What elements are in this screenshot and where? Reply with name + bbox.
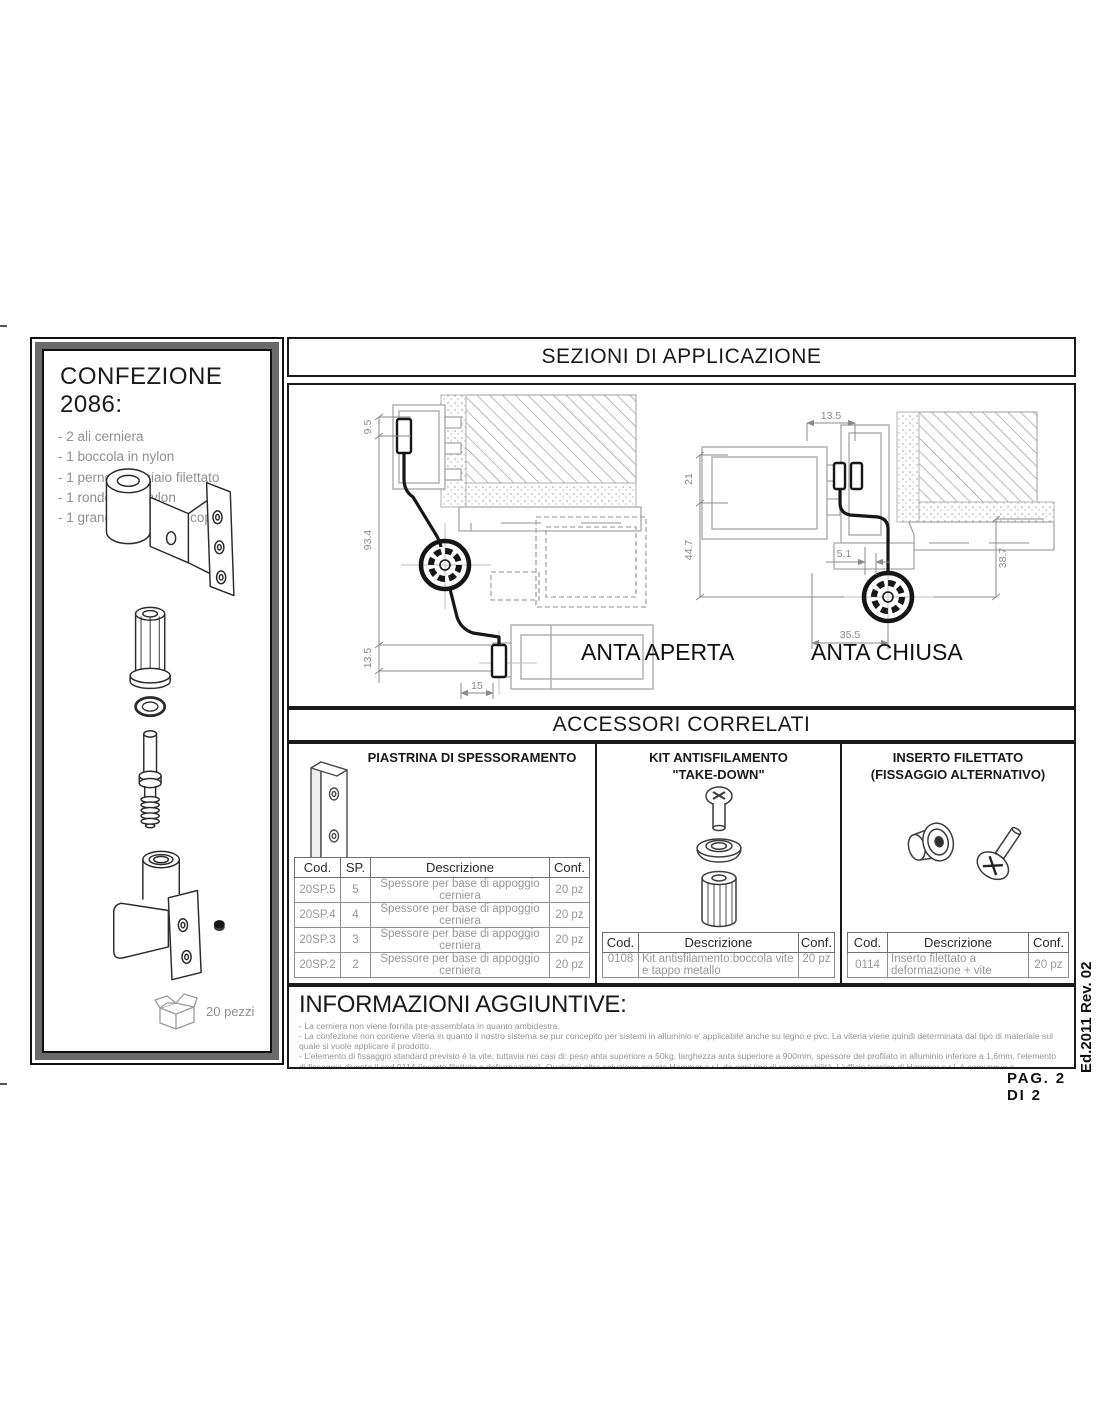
cell-cod: 20SP.4 xyxy=(295,903,341,928)
sezioni-title: SEZIONI DI APPLICAZIONE xyxy=(542,345,822,369)
package-quantity: 20 pezzi xyxy=(154,991,254,1031)
dim-label: 44.7 xyxy=(684,540,695,561)
accessori-header: ACCESSORI CORRELATI xyxy=(287,708,1076,742)
crop-mark xyxy=(0,1083,7,1085)
accessori-body: PIASTRINA DI SPESSORAMENTO Cod. xyxy=(287,742,1076,985)
cell-conf: 20 pz xyxy=(550,903,590,928)
exploded-hinge-drawing xyxy=(72,459,272,987)
accessori-title: ACCESSORI CORRELATI xyxy=(553,713,811,737)
confezione-panel: CONFEZIONE 2086: - 2 ali cerniera - 1 bo… xyxy=(30,337,284,1065)
dim-label: 13.5 xyxy=(362,648,374,669)
cell-conf: 20 pz xyxy=(550,953,590,978)
table-row: 20SP.3 3 Spessore per base di appoggio c… xyxy=(295,928,590,953)
cell-cod: 0114 xyxy=(848,953,888,978)
quantity-label: 20 pezzi xyxy=(206,1004,254,1019)
panel-kit-antisfilamento: KIT ANTISFILAMENTO "TAKE-DOWN" xyxy=(597,744,842,983)
sezioni-header: SEZIONI DI APPLICAZIONE xyxy=(287,337,1076,377)
inserto-table: Cod. Descrizione Conf. 0114 Inserto file… xyxy=(847,932,1069,978)
cell-descrizione: Spessore per base di appoggio cerniera xyxy=(371,953,550,978)
col-header-conf: Conf. xyxy=(798,933,834,953)
table-header-row: Cod. Descrizione Conf. xyxy=(848,933,1069,953)
cell-conf: 20 pz xyxy=(550,878,590,903)
informazioni-box: INFORMAZIONI AGGIUNTIVE: - La cerniera n… xyxy=(287,985,1076,1069)
inserto-filettato-drawing xyxy=(882,802,1042,902)
cell-cod: 20SP.3 xyxy=(295,928,341,953)
cell-conf: 20 pz xyxy=(798,953,834,978)
anta-chiusa-label: ANTA CHIUSA xyxy=(811,639,963,666)
catalog-page: CONFEZIONE 2086: - 2 ali cerniera - 1 bo… xyxy=(0,0,1100,1422)
page-number: PAG. 2 DI 2 xyxy=(1007,1070,1089,1105)
cell-sp: 4 xyxy=(341,903,371,928)
cell-cod: 20SP.2 xyxy=(295,953,341,978)
col-header-cod: Cod. xyxy=(603,933,639,953)
informazioni-bullet: - La confezione non contiene viteria in … xyxy=(299,1031,1064,1051)
cell-sp: 5 xyxy=(341,878,371,903)
kit-antisfilamento-drawing xyxy=(659,782,779,930)
cell-descrizione: Inserto filettato a deformazione + vite xyxy=(888,953,1029,978)
panel-inserto-filettato: INSERTO FILETTATO (FISSAGGIO ALTERNATIVO… xyxy=(842,744,1074,983)
table-row: 0108 Kit antisfilamento:boccola vite e t… xyxy=(603,953,835,978)
cell-descrizione: Kit antisfilamento:boccola vite e tappo … xyxy=(639,953,799,978)
table-header-row: Cod. SP. Descrizione Conf. xyxy=(295,858,590,878)
cell-sp: 3 xyxy=(341,928,371,953)
confezione-title: CONFEZIONE 2086: xyxy=(60,363,270,419)
kit-table: Cod. Descrizione Conf. 0108 Kit antisfil… xyxy=(602,932,835,978)
dim-label: 38.7 xyxy=(997,548,1009,569)
cell-descrizione: Spessore per base di appoggio cerniera xyxy=(371,878,550,903)
dim-label: 93.4 xyxy=(362,530,374,551)
table-row: 20SP.2 2 Spessore per base di appoggio c… xyxy=(295,953,590,978)
box-icon xyxy=(154,991,200,1031)
col-header-conf: Conf. xyxy=(1029,933,1069,953)
cell-cod: 0108 xyxy=(603,953,639,978)
col-header-descrizione: Descrizione xyxy=(639,933,799,953)
col-header-cod: Cod. xyxy=(848,933,888,953)
col-header-descrizione: Descrizione xyxy=(371,858,550,878)
col-header-cod: Cod. xyxy=(295,858,341,878)
panel-piastrina: PIASTRINA DI SPESSORAMENTO Cod. xyxy=(289,744,597,983)
dim-label: 5.1 xyxy=(837,548,852,560)
col-header-descrizione: Descrizione xyxy=(888,933,1029,953)
sezioni-body: 9.5 93.4 13.5 15 xyxy=(287,383,1076,708)
cell-conf: 20 pz xyxy=(550,928,590,953)
cell-sp: 2 xyxy=(341,953,371,978)
informazioni-title: INFORMAZIONI AGGIUNTIVE: xyxy=(299,991,1064,1019)
informazioni-bullet: - La cerniera non viene fornita pre-asse… xyxy=(299,1021,1064,1031)
anta-chiusa-drawing: 13.5 21 44.7 5.1 38.7 35.5 xyxy=(684,407,1064,657)
anta-aperta-label: ANTA APERTA xyxy=(581,639,734,666)
informazioni-bullet: - L'elemento di fissaggio standard previ… xyxy=(299,1051,1064,1069)
panel-title: INSERTO FILETTATO xyxy=(842,744,1074,767)
cell-descrizione: Spessore per base di appoggio cerniera xyxy=(371,928,550,953)
col-header-sp: SP. xyxy=(341,858,371,878)
table-header-row: Cod. Descrizione Conf. xyxy=(603,933,835,953)
dim-label: 13.5 xyxy=(821,410,842,422)
confezione-panel-frame: CONFEZIONE 2086: - 2 ali cerniera - 1 bo… xyxy=(35,342,279,1060)
panel-title: KIT ANTISFILAMENTO xyxy=(597,744,840,767)
spessori-table: Cod. SP. Descrizione Conf. 20SP.5 5 Spes… xyxy=(294,857,590,978)
table-row: 0114 Inserto filettato a deformazione + … xyxy=(848,953,1069,978)
col-header-conf: Conf. xyxy=(550,858,590,878)
crop-mark xyxy=(0,325,7,327)
table-row: 20SP.4 4 Spessore per base di appoggio c… xyxy=(295,903,590,928)
cell-descrizione: Spessore per base di appoggio cerniera xyxy=(371,903,550,928)
dim-label: 9.5 xyxy=(362,420,374,435)
dim-label: 21 xyxy=(684,473,695,485)
panel-subtitle: (FISSAGGIO ALTERNATIVO) xyxy=(842,767,1074,784)
edition-label: Ed.2011 Rev. 02 xyxy=(1078,948,1095,1073)
confezione-item: - 2 ali cerniera xyxy=(58,427,270,447)
cell-conf: 20 pz xyxy=(1029,953,1069,978)
dim-label: 15 xyxy=(471,680,483,692)
grub-screw xyxy=(214,920,225,931)
cell-cod: 20SP.5 xyxy=(295,878,341,903)
table-row: 20SP.5 5 Spessore per base di appoggio c… xyxy=(295,878,590,903)
